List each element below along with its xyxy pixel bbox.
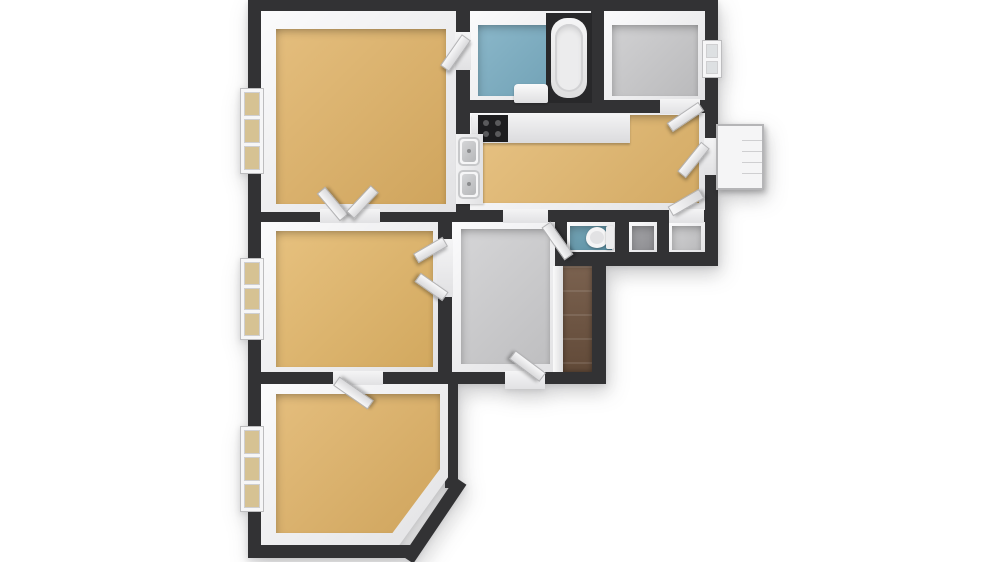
floor-living (276, 29, 446, 204)
window-pane (244, 484, 260, 508)
burner (483, 131, 489, 137)
toilet-tank (606, 226, 614, 249)
kitchen-sink-2 (458, 170, 480, 199)
room-bottom-bedroom (261, 384, 448, 545)
wall-top-outer (248, 0, 718, 11)
bathroom-sink (514, 84, 548, 103)
room-middle-bedroom (261, 222, 438, 372)
window-pane (244, 92, 260, 116)
wall-bath-utility (591, 0, 604, 110)
sink-drain (467, 182, 471, 186)
window-pane (244, 313, 260, 336)
wall-nook-divider (553, 266, 563, 372)
sink-drain (467, 149, 471, 153)
toilet-seat (590, 231, 604, 244)
wall-bed-hall-b (438, 297, 452, 384)
floor-closet-right (672, 226, 701, 250)
kitchen-sink-1 (458, 137, 480, 166)
toilet-bowl (586, 227, 608, 248)
bathtub-surround (546, 13, 592, 103)
bathtub (551, 18, 587, 98)
room-living (261, 11, 456, 212)
room-closet-small (629, 222, 657, 252)
window-pane (244, 146, 260, 170)
wall-strip-div2 (657, 210, 669, 266)
wall-mid-d (704, 210, 718, 222)
window-pane (706, 61, 718, 75)
window-pane (244, 262, 260, 285)
room-closet-right (669, 222, 705, 252)
bathtub-basin (555, 24, 583, 92)
balcony-landing (716, 124, 764, 190)
window-pane (706, 44, 718, 58)
floorplan (0, 0, 1000, 562)
floorplan-canvas: { "scene": { "type": "3d-floorplan-top-d… (0, 0, 1000, 562)
room-utility (604, 11, 705, 100)
wall-nook-right (592, 252, 606, 384)
opening-kitchen-hall (503, 209, 548, 223)
wall-bed-hall-a (438, 210, 452, 239)
floor-utility (612, 25, 698, 96)
window-pane (244, 119, 260, 143)
floor-closet-small (632, 226, 654, 250)
wall-bottom-outer (248, 545, 410, 558)
room-hallway (452, 222, 555, 372)
window-pane (244, 430, 260, 454)
wall-low-a (248, 372, 333, 384)
floor-bottom-bedroom (276, 394, 440, 533)
balcony-steps (742, 130, 762, 184)
window-pane (244, 457, 260, 481)
floor-hallway (461, 229, 550, 364)
toilet (586, 226, 614, 249)
wall-living-kitchen-a (456, 0, 470, 32)
burner (495, 131, 501, 137)
wall-strip-bottom (555, 252, 718, 266)
burner (483, 120, 489, 126)
window-middle-bedroom (240, 258, 264, 340)
window-utility (702, 40, 722, 78)
floor-wardrobe-nook (563, 266, 592, 372)
wall-strip-div1 (615, 210, 629, 266)
window-bottom-bedroom (240, 426, 264, 512)
window-living (240, 88, 264, 174)
burner (495, 120, 501, 126)
kitchen-sink-unit (456, 134, 483, 204)
window-pane (244, 288, 260, 311)
floor-middle-bedroom (276, 231, 433, 367)
